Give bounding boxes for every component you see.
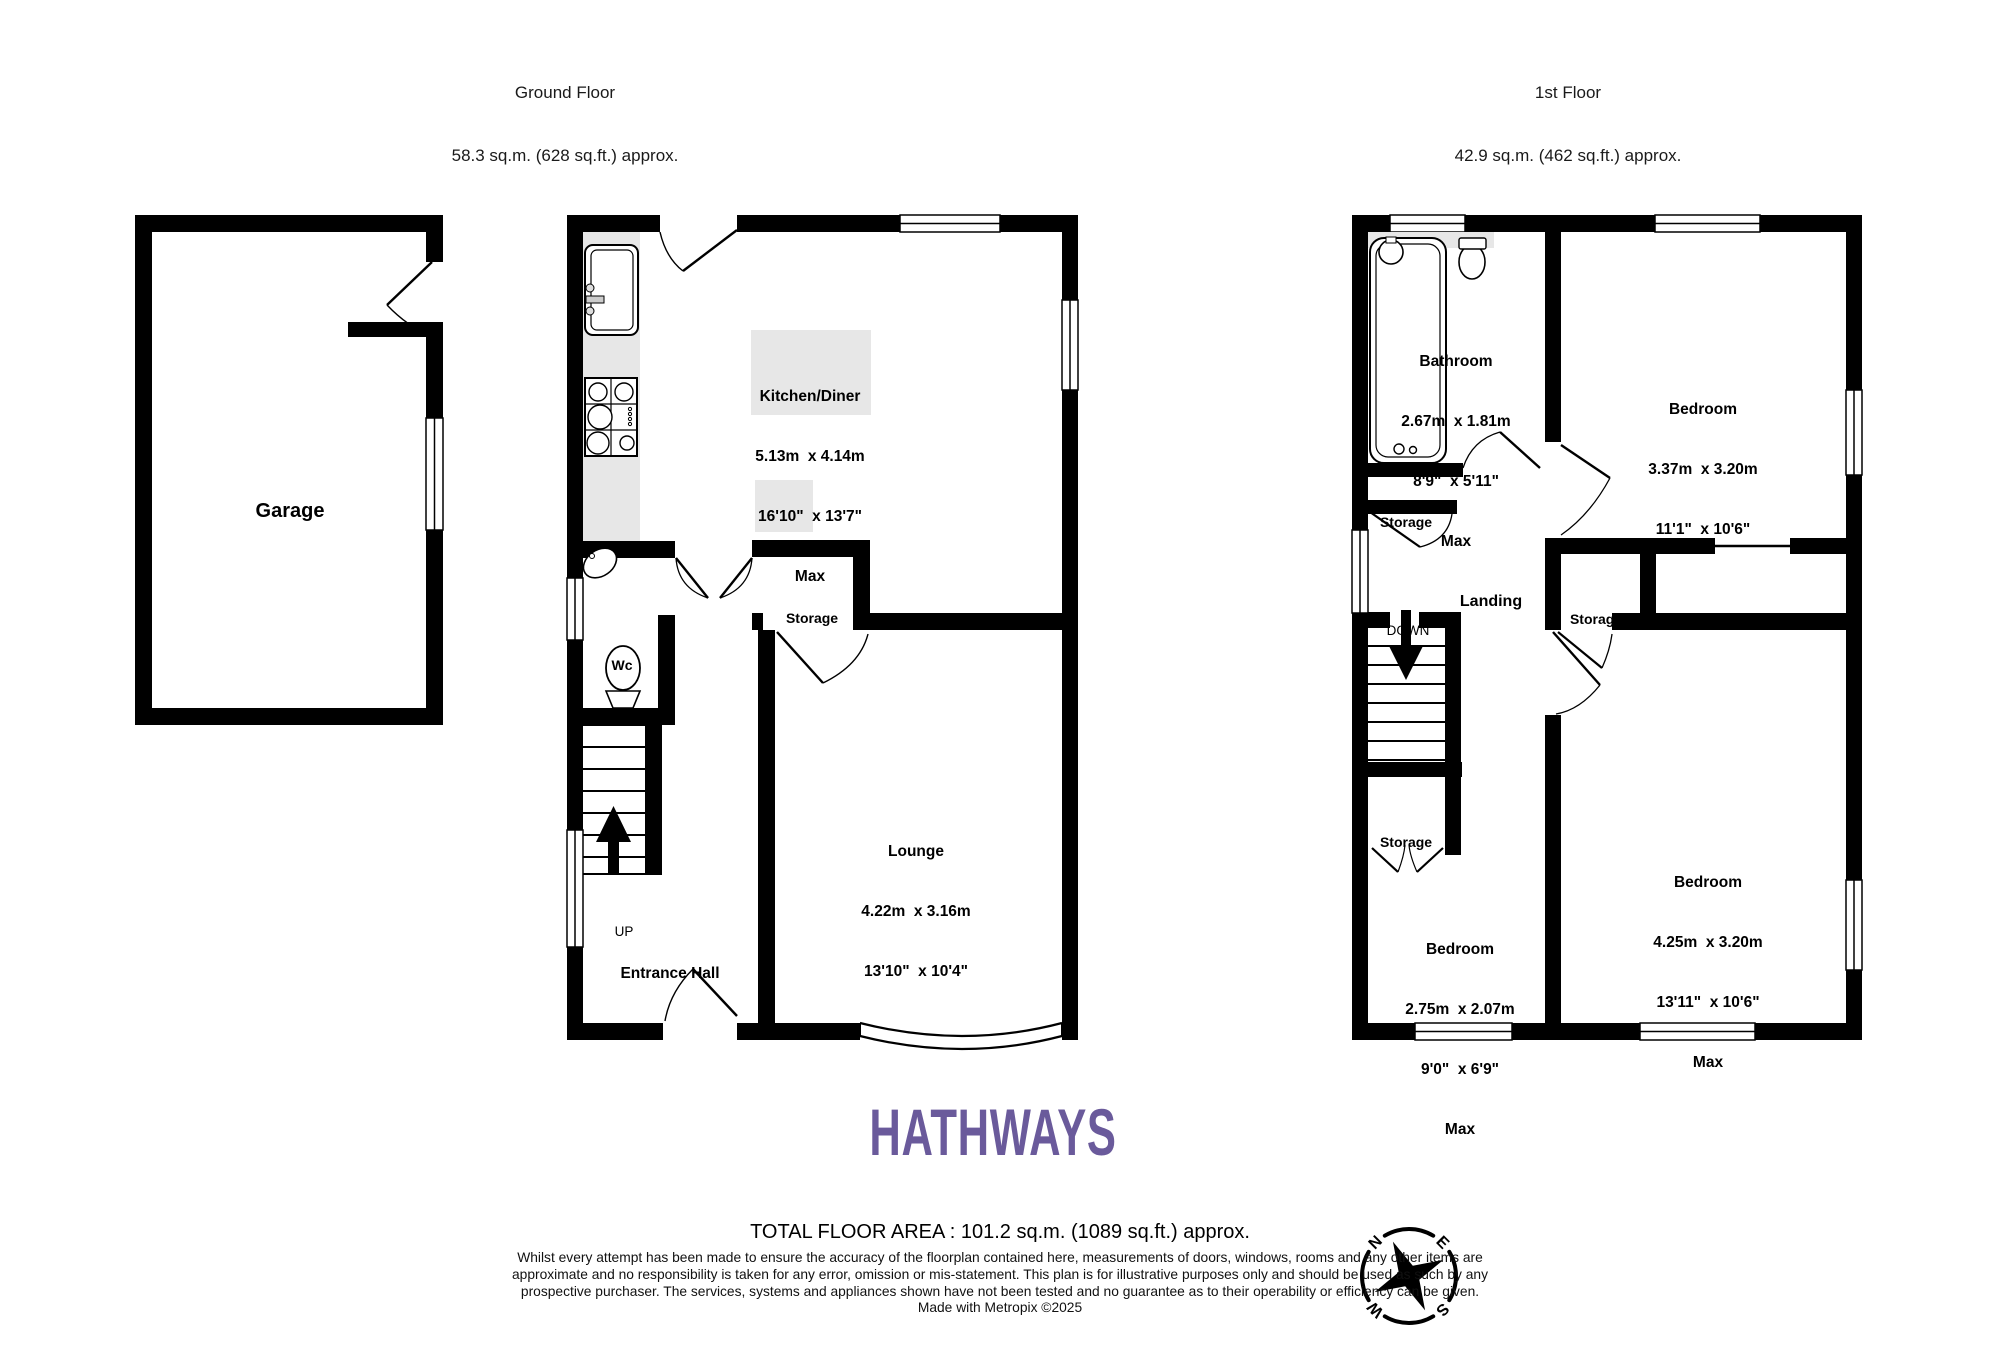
footer: TOTAL FLOOR AREA : 101.2 sq.m. (1089 sq.…	[510, 1220, 1490, 1317]
total-floor-area: TOTAL FLOOR AREA : 101.2 sq.m. (1089 sq.…	[510, 1220, 1490, 1245]
hob-icon	[585, 378, 637, 456]
landing-window	[1352, 530, 1368, 613]
bedroom-top-door-swing	[1561, 445, 1610, 535]
sink-icon	[585, 245, 638, 335]
header-ground-floor: Ground Floor 58.3 sq.m. (628 sq.ft.) app…	[452, 40, 679, 208]
storage-under-bathroom-label: Storage	[1380, 480, 1432, 565]
garage-window	[426, 418, 443, 530]
bedroom-right-window-1	[1846, 390, 1862, 475]
bedroom-top-right-label: Bedroom 3.37m x 3.20m 11'1" x 10'6"	[1648, 360, 1757, 580]
ground-floor-title: Ground Floor	[452, 82, 679, 103]
ground-floor-area: 58.3 sq.m. (628 sq.ft.) approx.	[452, 145, 679, 166]
bedroom-bottom-left-label: Bedroom 2.75m x 2.07m 9'0" x 6'9" Max	[1405, 900, 1514, 1180]
up-arrow-icon	[596, 806, 631, 874]
first-floor-area: 42.9 sq.m. (462 sq.ft.) approx.	[1455, 145, 1682, 166]
first-floor-title: 1st Floor	[1455, 82, 1682, 103]
metropix-credit: Made with Metropix ©2025	[510, 1300, 1490, 1317]
diner-side-window	[1062, 300, 1078, 390]
disclaimer-text: Whilst every attempt has been made to en…	[510, 1250, 1490, 1300]
hathways-logo: HATHWAYS	[869, 1102, 1116, 1162]
storage-gf-label: Storage	[786, 576, 838, 661]
hall-window	[567, 830, 583, 947]
storage-under-stairs-label: Storage	[1380, 800, 1432, 885]
kitchen-door-swing	[660, 230, 737, 271]
down-label: DOWN	[1387, 581, 1430, 681]
header-first-floor: 1st Floor 42.9 sq.m. (462 sq.ft.) approx…	[1455, 40, 1682, 208]
bathroom-top-window	[1390, 215, 1465, 232]
bedroom-top-window	[1655, 215, 1760, 232]
floorplan-page: N E S W Ground Floor 58.3 sq.m. (628 sq.…	[0, 0, 2000, 1348]
bedroom-right-window-2	[1846, 880, 1862, 970]
kitchen-top-window	[900, 215, 1000, 232]
landing-label: Landing	[1460, 552, 1522, 652]
wc-label: Wc	[612, 623, 633, 708]
wc-window	[567, 578, 583, 640]
garage-label: Garage	[256, 461, 325, 561]
storage-landing-left-label: Storage	[1570, 577, 1622, 662]
storage-landing-right-label: Storage	[1722, 577, 1774, 662]
bathroom-toilet-icon	[1459, 238, 1486, 279]
entrance-hall-label: Entrance Hall	[620, 924, 719, 1024]
bay-window	[860, 1023, 1062, 1049]
kitchen-hall-doors	[676, 558, 752, 598]
bedroom-bottom-right-label: Bedroom 4.25m x 3.20m 13'11" x 10'6" Max	[1653, 833, 1762, 1113]
lounge-label: Lounge 4.22m x 3.16m 13'10" x 10'4"	[861, 802, 970, 1022]
